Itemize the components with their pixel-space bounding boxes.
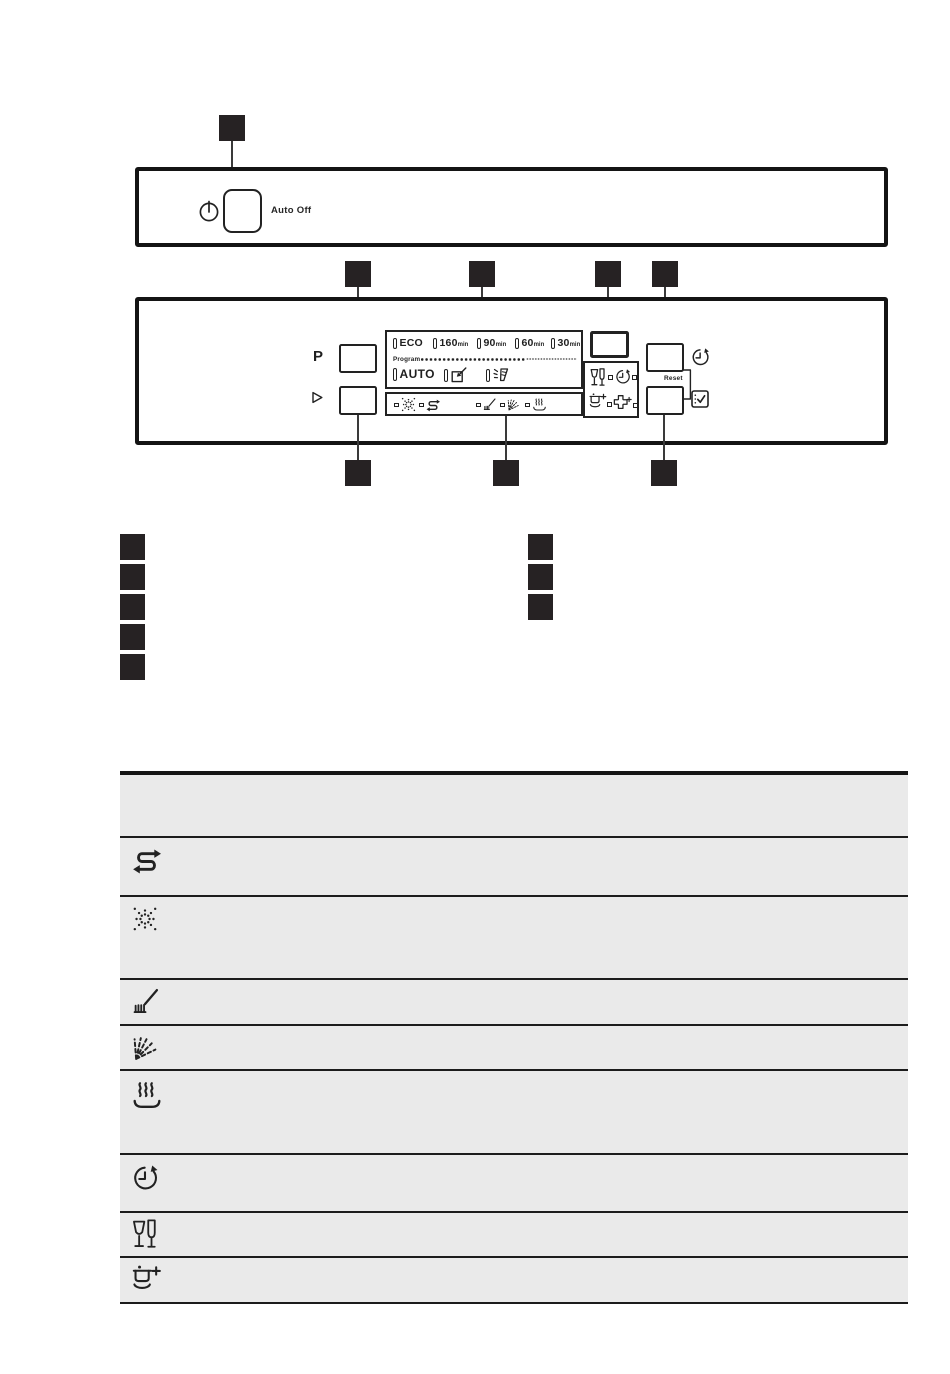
glass-icon [132,1219,158,1249]
program-160-label: 160 [440,337,458,349]
program-dotted-line-fine [526,358,577,360]
program-rinse [486,367,509,383]
status-indicator-strip [385,392,583,416]
cross-option-square [633,403,638,408]
drying-phase-icon [132,1081,162,1109]
washing-phase-icon [483,398,496,411]
salt-icon [132,848,161,875]
program-auto-label: AUTO [400,367,435,381]
program-30min: 30min [551,337,580,349]
salt-icon [426,399,440,412]
callout-6-line [357,415,359,460]
rinsing-phase-indicator-square [500,403,505,408]
ok-icon [691,390,709,408]
function-button[interactable] [590,331,629,358]
callout-7 [493,460,519,486]
callout-1 [219,115,245,141]
legend-square-3 [120,594,145,620]
delay-icon [691,348,710,367]
program-indicator-bar [486,369,490,382]
program-indicator-bar [433,338,437,349]
delay-button[interactable] [646,343,684,372]
legend-square-2 [120,564,145,590]
delay-icon [132,1165,159,1192]
time-option-square [632,375,637,380]
option-cross-icon [613,394,632,410]
callout-4 [595,261,621,287]
rinse-program-icon [493,367,509,383]
callout-2 [345,261,371,287]
rinse-aid-icon [401,397,416,412]
table-row-salt [120,838,908,897]
program-90-label: 90 [484,337,496,349]
program-auto: AUTO [393,367,435,381]
display-window: ECO 160min 90min 60min 30min Program AUT… [385,330,583,389]
program-indicator-bar [551,338,555,349]
manual-page: Auto Off P ECO 160min 90min 60min [0,0,950,1374]
table-row-rinsing-phase [120,1026,908,1071]
legend-square-6 [528,534,553,560]
table-row-extra-power [120,1258,908,1304]
salt-indicator-square [419,403,424,408]
program-machine-care [444,367,467,383]
program-60-label: 60 [522,337,534,349]
table-row-rinse-aid [120,897,908,980]
legend-square-1 [120,534,145,560]
rinsing-phase-icon [507,398,520,411]
program-key-label: P [313,348,324,365]
callout-5 [652,261,678,287]
program-indicator-bar [515,338,519,349]
glass-icon [590,368,606,387]
legend-square-8 [528,594,553,620]
program-dotted-line [420,358,526,361]
callout-6 [345,460,371,486]
auto-off-label: Auto Off [271,205,311,216]
callout-3 [469,261,495,287]
time-icon [615,369,631,385]
indicator-legend-table [120,771,908,1304]
program-160min: 160min [433,337,468,349]
program-60min: 60min [515,337,544,349]
table-row-glass [120,1213,908,1258]
table-row-delay [120,1155,908,1213]
start-button[interactable] [339,386,377,415]
power-button[interactable] [223,189,262,233]
legend-square-4 [120,624,145,650]
table-row-washing-phase [120,980,908,1026]
table-row-header [120,775,908,838]
drying-phase-icon [532,398,547,411]
callout-7-line [505,416,507,460]
glass-option-square [608,375,613,380]
extra-power-icon [132,1265,162,1293]
callout-8 [651,460,677,486]
program-eco-label: ECO [400,337,423,349]
callout-8-line [663,415,665,460]
program-eco: ECO [393,337,423,349]
program-caption: Program [393,356,420,363]
extra-power-icon [589,393,607,410]
washing-phase-icon [132,988,159,1015]
program-indicator-bar [477,338,481,349]
washing-phase-indicator-square [476,403,481,408]
machine-care-icon [451,367,467,383]
program-button[interactable] [339,344,377,373]
reset-label: Reset [664,375,683,382]
program-indicator-bar [393,368,397,381]
extra-power-option-square [607,402,612,407]
play-icon [310,390,325,405]
program-90min: 90min [477,337,506,349]
rinsing-phase-icon [132,1034,159,1061]
program-30-label: 30 [558,337,570,349]
rinse-aid-indicator-square [394,403,399,408]
program-indicator-bar [444,369,448,382]
legend-square-5 [120,654,145,680]
table-row-drying-phase [120,1071,908,1155]
power-panel: Auto Off [135,167,888,247]
ok-button[interactable] [646,386,684,415]
program-indicator-bar [393,338,397,349]
option-indicator-box [583,361,639,418]
power-icon [198,200,220,222]
rinse-aid-icon [132,906,158,932]
drying-phase-indicator-square [525,403,530,408]
legend-square-7 [528,564,553,590]
